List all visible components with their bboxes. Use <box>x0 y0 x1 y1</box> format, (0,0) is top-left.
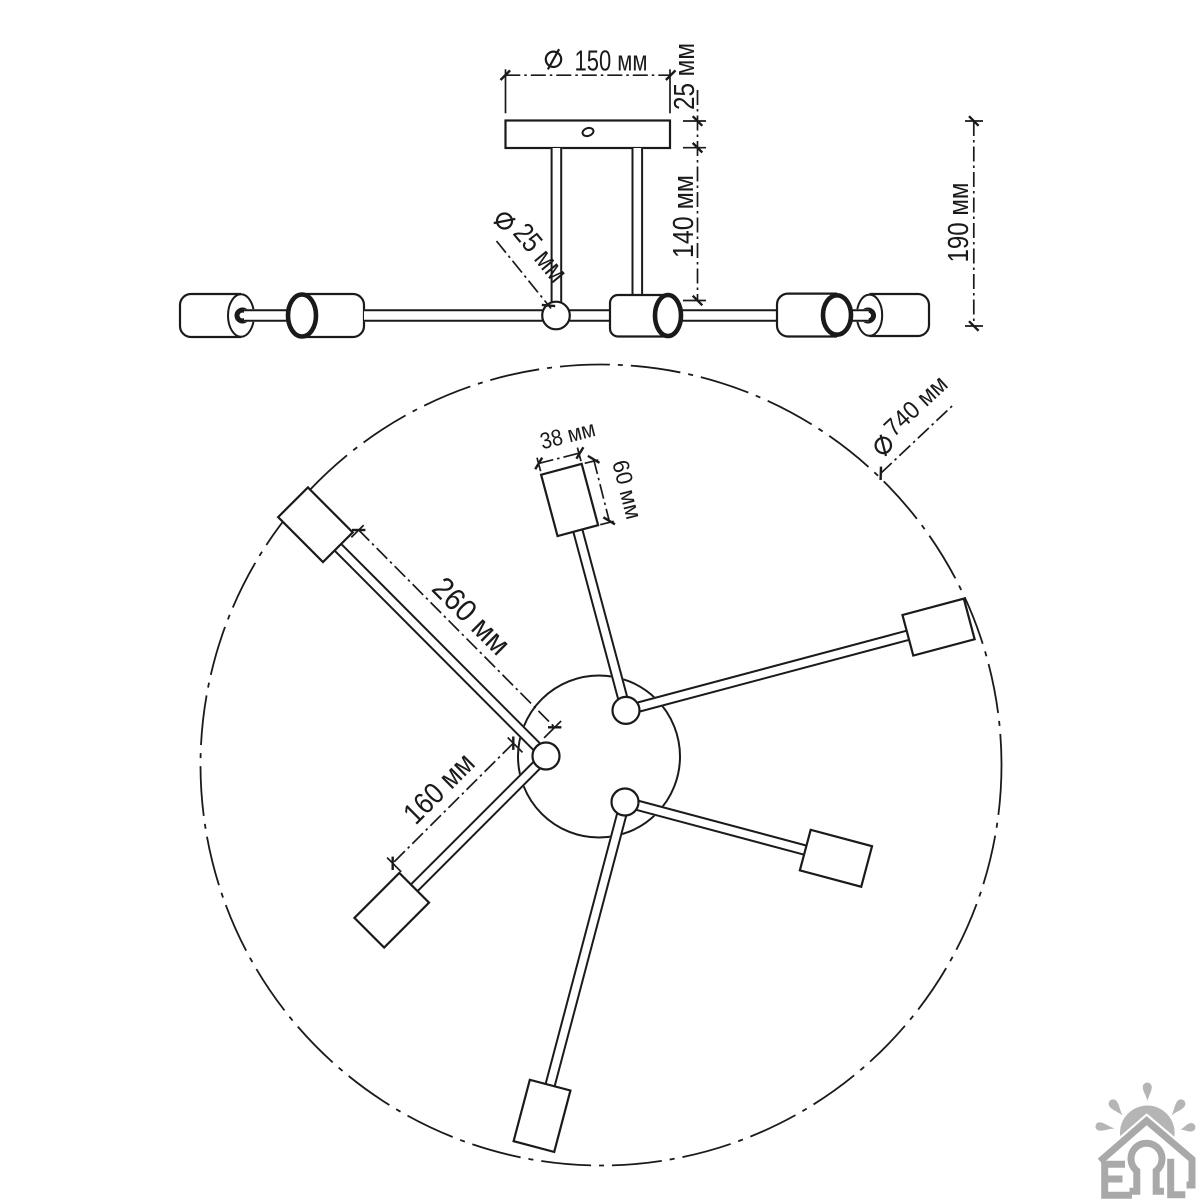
svg-text:150 мм: 150 мм <box>575 46 648 78</box>
svg-text:25 мм: 25 мм <box>669 43 701 110</box>
svg-text:140 мм: 140 мм <box>668 175 700 258</box>
svg-text:190 мм: 190 мм <box>943 183 975 263</box>
